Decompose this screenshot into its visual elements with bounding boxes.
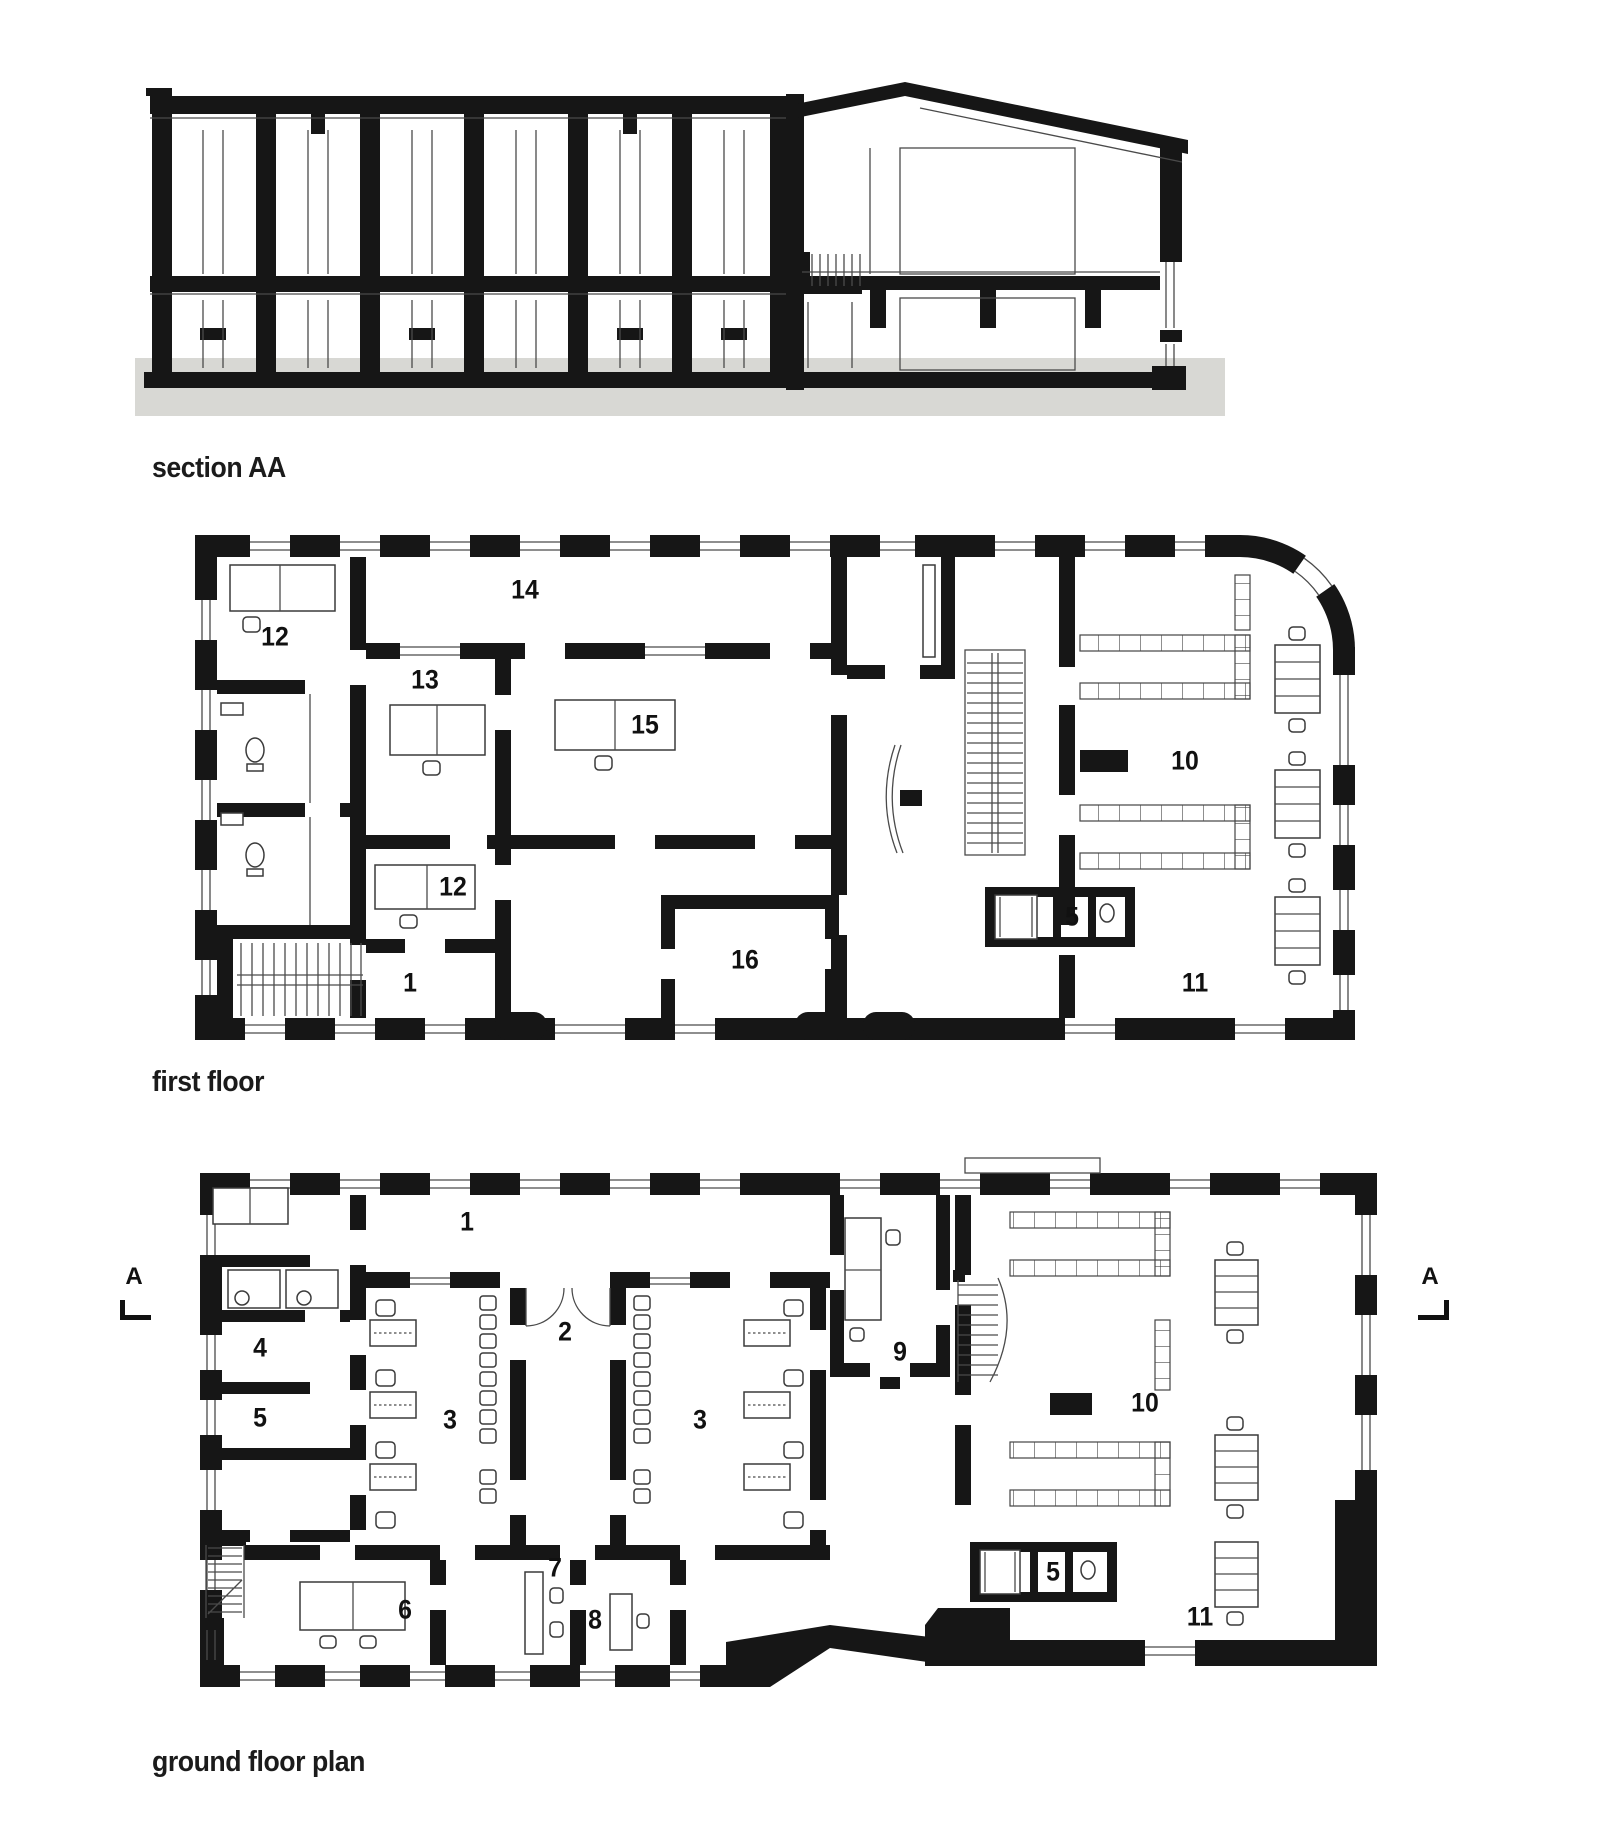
gf-room-label-2: 2 [558,1317,572,1348]
gf-room-label-3a: 3 [443,1405,457,1436]
gf-room-label-9: 9 [893,1337,907,1368]
ff-room-label-13: 13 [411,665,439,696]
gf-room-label-4: 4 [253,1333,267,1364]
ff-room-label-5: 5 [1065,902,1079,933]
gf-room-label-8: 8 [588,1605,602,1636]
gf-room-label-5: 5 [253,1403,267,1434]
ff-room-label-14: 14 [511,575,539,606]
architectural-sheet: { "titles": { "section": "section AA", "… [0,0,1600,1834]
first-floor-title: first floor [152,1066,264,1099]
ff-room-label-12b: 12 [439,872,467,903]
ground-floor-plan [110,1170,1450,1700]
ff-room-label-1: 1 [403,968,417,999]
ground-floor-reading-desks [1215,1242,1258,1625]
section-drawing [130,78,1230,423]
ff-room-label-15: 15 [631,710,659,741]
first-floor-interior-walls [217,557,1135,1021]
gf-room-label-10: 10 [1131,1388,1159,1419]
gf-room-label-1: 1 [460,1207,474,1238]
section-marker-right-tick [1418,1300,1449,1320]
section-walls [144,82,1188,390]
section-marker-left-tick [120,1300,151,1320]
ground-floor-title: ground floor plan [152,1746,365,1779]
section-thin-lines [150,108,1182,370]
first-floor-bookstacks [1080,575,1250,869]
first-floor-reading-desks [1275,627,1320,984]
ground-floor-bookstacks [1010,1212,1170,1506]
gf-room-label-5-elevator: 5 [1046,1557,1060,1588]
gf-room-label-3b: 3 [693,1405,707,1436]
ff-room-label-11: 11 [1182,968,1208,999]
ff-room-label-12a: 12 [261,622,289,653]
section-marker-left: A [125,1263,142,1291]
section-marker-right: A [1421,1263,1438,1291]
gf-room-label-11: 11 [1187,1602,1213,1633]
ff-room-label-10: 10 [1171,746,1199,777]
first-floor-exterior-walls [195,535,1355,1040]
gf-room-label-6: 6 [398,1595,412,1626]
gf-room-label-7: 7 [548,1553,562,1584]
ff-room-label-16: 16 [731,945,759,976]
first-floor-windows [202,542,1348,1033]
roof-protrusion [965,1158,1100,1173]
section-title: section AA [152,452,286,485]
